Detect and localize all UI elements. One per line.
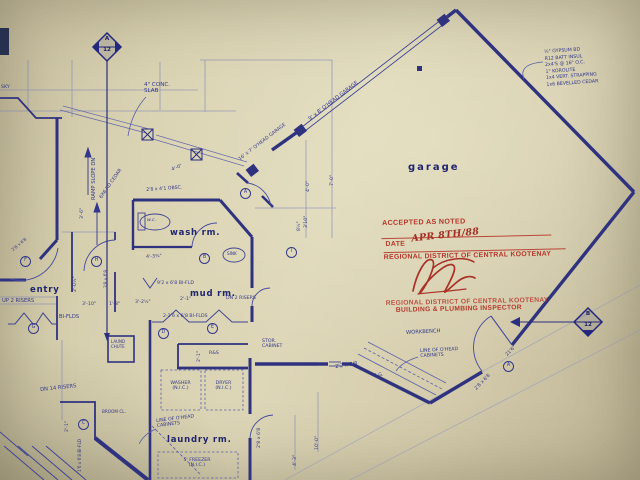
note-freezer: 5' FREEZER (N.I.C.) (176, 458, 218, 469)
note-bifld-mud: 2-2'6 x 6'8 BI-FLDS (163, 314, 208, 319)
note-conc-slab: 4" CONC. SLAB (144, 82, 170, 95)
note-wc: w.c. (147, 218, 156, 223)
note-biflds: BI-FLDS (59, 315, 79, 321)
door-tag-a2: A (503, 361, 514, 372)
note-laundry-chute: LAUND CHUTE (111, 340, 125, 349)
room-label-laundry: laundry rm. (167, 436, 232, 446)
dim-3-10-b: 3'-10" (82, 302, 96, 307)
note-cabinets-garage: LINE OF O'HEAD CABINETS (420, 347, 459, 360)
note-rod-shelf: R&S (209, 351, 219, 356)
dim-1-8: 1'-8" (109, 302, 120, 307)
door-tag-b: B (199, 253, 210, 264)
door-tag-f: F (20, 256, 31, 267)
posts (246, 14, 450, 177)
door-tag-h: H (91, 256, 102, 267)
dim-3-10-a: 3'10" (304, 216, 309, 228)
stamp-inspector: BUILDING & PLUMBING INSPECTOR (396, 304, 522, 314)
dim-8-half: 8½" (297, 221, 302, 231)
dim-4-0-a: 4'-0" (306, 181, 311, 192)
dim-2-1-a: 2'-1" (180, 297, 191, 302)
wall-assembly-note: ½" GYPSUM BD R12 BATT INSUL 2x4'S @ 16" … (544, 46, 599, 89)
door-tag-i: I (286, 247, 297, 258)
room-label-entry: entry (30, 286, 60, 296)
note-dryer: DRYER (N.I.C.) (206, 381, 241, 392)
note-bifld-wash: 9'2 x 6'8 BI-FLD (157, 281, 194, 286)
dim-3-6: 3'-6" (80, 208, 85, 219)
marker-a-number: 12 (99, 47, 115, 53)
note-dn-2-risers: DN 2 RISERS (226, 296, 256, 301)
dim-door-h: 3'8 x 6'8 (104, 270, 109, 288)
blueprint-photo: garage entry wash rm. mud rm. laundry rm… (0, 0, 640, 480)
dim-3-2-half: 3'-2½" (135, 300, 151, 305)
dim-4-3: 4'-3" (293, 455, 298, 466)
stamp-accepted: ACCEPTED AS NOTED (382, 216, 466, 227)
note-stor-cabinet: STOR. CABINET (262, 339, 282, 350)
marker-b-number: 12 (580, 322, 596, 328)
note-washer: WASHER (N.I.C.) (163, 381, 198, 392)
door-tag-e: E (207, 323, 218, 334)
note-sink: SINK (227, 252, 237, 257)
construction-lines (0, 60, 336, 470)
dim-7-0: 7'-0" (330, 175, 335, 186)
stamp-date-value: APR 8TH/88 (411, 226, 480, 244)
door-tag-g: G (28, 323, 39, 334)
note-up-2-risers: UP 2 RISERS (2, 299, 34, 305)
note-ramp-slope: RAMP SLOPE DN (92, 158, 98, 200)
note-broom-closet: BROOM CL. (102, 410, 126, 415)
dim-4-3-three-quarter: 4'-3¾" (146, 254, 162, 260)
door-tag-c: C (78, 419, 89, 430)
door-tag-d: D (158, 328, 169, 339)
note-sky: SKY (1, 85, 10, 90)
marker-b-letter: B (580, 311, 596, 317)
door-tag-a1: A (240, 188, 251, 199)
approval-stamp: ACCEPTED AS NOTED DATE APR 8TH/88 REGION… (379, 210, 586, 326)
dim-2-1-b: 2'-1" (197, 351, 202, 362)
dim-2-1-c: 2'-1" (65, 421, 70, 432)
room-label-wash: wash rm. (170, 229, 220, 239)
paper-edge-mark (0, 28, 9, 55)
stamp-date-label: DATE (385, 241, 405, 248)
marker-a-letter: A (99, 36, 115, 42)
stair-treads (0, 432, 86, 480)
dim-2-0-half: 2'-0½" (73, 276, 78, 292)
room-label-garage: garage (408, 162, 460, 174)
dim-door-laundry: 2'8 x 6'8 (257, 428, 262, 448)
dim-10-0: 10'-0" (315, 436, 320, 450)
note-bifld-stair: 1'6 x 6'8 BI-FLD (78, 439, 83, 472)
